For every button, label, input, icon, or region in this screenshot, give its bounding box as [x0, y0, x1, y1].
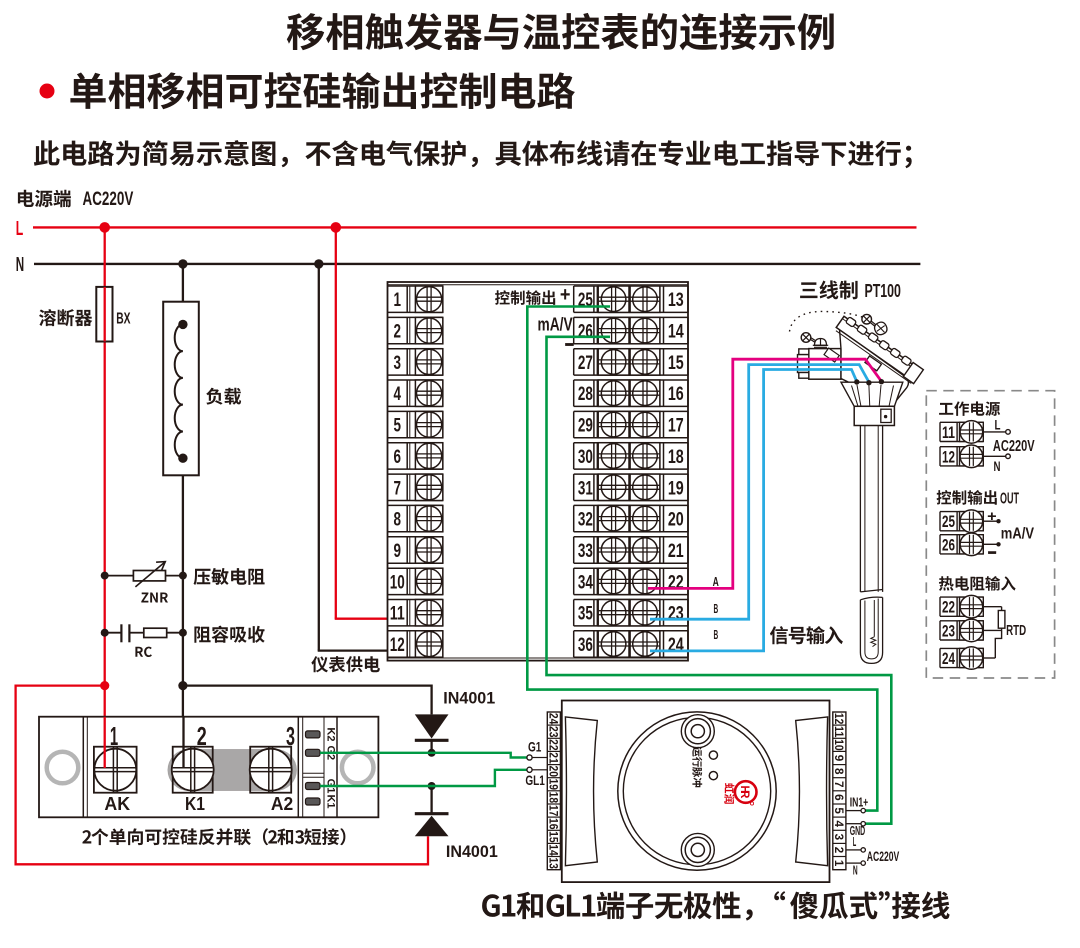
- svg-text:B: B: [714, 628, 719, 642]
- svg-text:23: 23: [668, 603, 684, 625]
- svg-text:BX: BX: [116, 310, 131, 327]
- svg-text:17: 17: [546, 805, 560, 817]
- svg-text:28: 28: [578, 383, 593, 405]
- svg-text:L: L: [853, 835, 857, 849]
- svg-text:36: 36: [578, 634, 593, 656]
- svg-text:AC220V: AC220V: [867, 849, 900, 864]
- svg-text:33: 33: [578, 540, 593, 562]
- svg-text:11: 11: [832, 726, 846, 738]
- svg-text:15: 15: [546, 831, 560, 843]
- svg-text:PT100: PT100: [865, 280, 901, 301]
- svg-text:19: 19: [546, 779, 560, 791]
- svg-text:5: 5: [832, 807, 846, 814]
- svg-text:16: 16: [546, 818, 560, 830]
- svg-text:22: 22: [942, 599, 955, 617]
- svg-text:A: A: [713, 574, 720, 589]
- svg-text:8: 8: [394, 509, 402, 531]
- svg-text:24: 24: [668, 634, 684, 656]
- svg-text:13: 13: [546, 857, 560, 869]
- svg-text:10: 10: [390, 571, 405, 593]
- svg-text:2: 2: [197, 721, 207, 751]
- svg-text:22: 22: [546, 739, 560, 751]
- svg-text:1: 1: [832, 860, 846, 867]
- svg-text:AK: AK: [104, 794, 130, 814]
- svg-text:21: 21: [546, 752, 560, 764]
- svg-text:IN4001: IN4001: [446, 843, 498, 861]
- svg-text:3: 3: [394, 352, 402, 374]
- svg-text:11: 11: [390, 603, 405, 625]
- svg-text:18: 18: [668, 446, 684, 468]
- svg-text:12: 12: [832, 713, 846, 725]
- svg-text:13: 13: [668, 289, 684, 311]
- svg-text:N: N: [16, 253, 24, 276]
- svg-text:12: 12: [390, 634, 405, 656]
- svg-text:16: 16: [668, 383, 684, 405]
- svg-text:17: 17: [668, 415, 684, 437]
- svg-text:12: 12: [942, 448, 955, 466]
- svg-text:24: 24: [942, 650, 956, 668]
- svg-text:2: 2: [394, 321, 402, 343]
- svg-text:9: 9: [832, 755, 846, 762]
- svg-text:23: 23: [546, 726, 560, 738]
- svg-text:OUT: OUT: [1000, 490, 1019, 507]
- svg-text:25: 25: [578, 289, 593, 311]
- svg-text:5: 5: [394, 415, 402, 437]
- svg-text:35: 35: [578, 603, 593, 625]
- svg-text:RTD: RTD: [1006, 623, 1026, 639]
- svg-text:10: 10: [832, 739, 846, 751]
- svg-text:N: N: [994, 458, 1001, 474]
- svg-text:L: L: [995, 417, 1001, 433]
- svg-text:26: 26: [578, 321, 593, 343]
- svg-text:29: 29: [578, 415, 593, 437]
- svg-text:20: 20: [668, 509, 684, 531]
- svg-text:30: 30: [578, 446, 593, 468]
- svg-text:AC220V: AC220V: [83, 188, 134, 210]
- svg-text:AC220V: AC220V: [993, 438, 1035, 455]
- svg-text:HR: HR: [738, 786, 750, 800]
- svg-text:7: 7: [394, 477, 402, 499]
- svg-text:15: 15: [668, 352, 684, 374]
- svg-text:3: 3: [286, 721, 295, 751]
- svg-text:4: 4: [394, 383, 402, 405]
- svg-text:14: 14: [668, 321, 684, 343]
- svg-text:21: 21: [668, 540, 684, 562]
- svg-text:27: 27: [578, 352, 593, 374]
- svg-text:N: N: [853, 863, 858, 877]
- svg-text:6: 6: [832, 794, 846, 801]
- svg-text:+: +: [987, 508, 997, 525]
- svg-text:2: 2: [832, 847, 846, 854]
- svg-text:4: 4: [832, 820, 846, 827]
- svg-text:L: L: [16, 217, 23, 240]
- svg-text:7: 7: [832, 781, 846, 788]
- svg-text:18: 18: [546, 792, 560, 804]
- svg-text:1: 1: [110, 721, 118, 751]
- svg-text:mA/V: mA/V: [1001, 526, 1035, 543]
- svg-text:25: 25: [942, 513, 955, 531]
- svg-text:8: 8: [832, 768, 846, 775]
- svg-text:3: 3: [832, 834, 846, 841]
- svg-text:1: 1: [394, 289, 402, 311]
- svg-text:14: 14: [546, 844, 560, 856]
- svg-text:mA/V: mA/V: [538, 314, 573, 334]
- svg-text:22: 22: [668, 571, 684, 593]
- svg-text:9: 9: [394, 540, 402, 562]
- svg-text:31: 31: [578, 477, 593, 499]
- svg-text:26: 26: [942, 536, 955, 554]
- svg-text:34: 34: [578, 571, 593, 593]
- svg-text:A2: A2: [271, 794, 293, 814]
- svg-text:32: 32: [578, 509, 593, 531]
- svg-text:24: 24: [546, 713, 560, 725]
- svg-text:11: 11: [942, 424, 955, 442]
- svg-text:K1: K1: [325, 794, 337, 808]
- svg-text:IN1+: IN1+: [850, 794, 869, 809]
- svg-text:K1: K1: [185, 794, 205, 814]
- svg-text:20: 20: [546, 765, 560, 777]
- svg-text:19: 19: [668, 477, 684, 499]
- svg-text:B: B: [714, 602, 719, 616]
- svg-text:23: 23: [942, 622, 955, 640]
- svg-text:K2: K2: [325, 727, 337, 741]
- svg-text:IN4001: IN4001: [443, 690, 495, 708]
- svg-text:G1: G1: [528, 740, 542, 755]
- svg-text:GL1: GL1: [525, 773, 545, 788]
- svg-text:+: +: [560, 284, 571, 306]
- svg-text:6: 6: [394, 446, 402, 468]
